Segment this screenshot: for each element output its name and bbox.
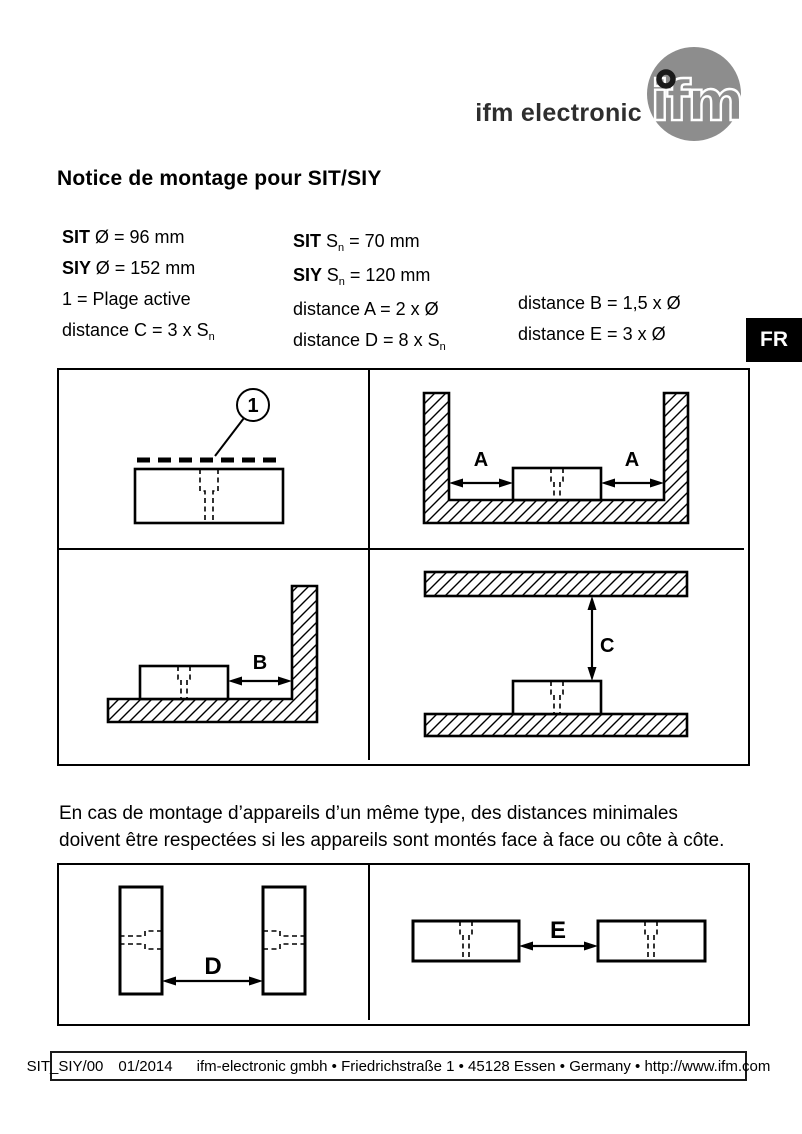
- spec-column-1: SIT Ø = 96 mmSIY Ø = 152 mm1 = Plage act…: [62, 222, 215, 349]
- callout-label: 1: [247, 395, 258, 417]
- distance-b-arrow: [228, 677, 292, 686]
- sensor-outline: [513, 681, 601, 714]
- diagram-distance-c: C: [370, 550, 744, 760]
- spec-column-3: distance B = 1,5 x Ødistance E = 3 x Ø: [518, 288, 681, 350]
- diagram-active-zone: 1: [59, 370, 370, 550]
- u-channel-hatched: [424, 393, 688, 523]
- page-title: Notice de montage pour SIT/SIY: [57, 167, 382, 191]
- diagram-distance-a: A A: [370, 370, 744, 550]
- footer-doc-code: SIT_SIY/00: [27, 1058, 104, 1075]
- spec-line: SIY Ø = 152 mm: [62, 253, 215, 284]
- spec-line: distance E = 3 x Ø: [518, 319, 681, 350]
- spec-line: SIY Sn = 120 mm: [293, 260, 446, 294]
- sensor-outline: [120, 887, 162, 994]
- distance-a-label: A: [474, 449, 488, 471]
- spec-column-2: SIT Sn = 70 mmSIY Sn = 120 mmdistance A …: [293, 226, 446, 359]
- sensor-outline: [140, 666, 228, 699]
- spec-line: SIT Ø = 96 mm: [62, 222, 215, 253]
- footer-address: ifm-electronic gmbh • Friedrichstraße 1 …: [197, 1058, 771, 1075]
- language-tab: FR: [746, 318, 802, 362]
- distance-c-label: C: [600, 635, 614, 657]
- note-paragraph: En cas de montage d’appareils d’un même …: [59, 800, 731, 854]
- spec-line: 1 = Plage active: [62, 284, 215, 315]
- spec-line: distance D = 8 x Sn: [293, 325, 446, 359]
- footer-date: 01/2014: [118, 1058, 172, 1075]
- diagram-table-2: D E: [57, 863, 750, 1026]
- ifm-logo: ifm: [646, 46, 742, 142]
- diagram-distance-e: E: [370, 865, 744, 1020]
- sensor-outline: [135, 469, 283, 523]
- callout-leader-line: [215, 418, 244, 456]
- spec-line: distance B = 1,5 x Ø: [518, 288, 681, 319]
- footer-bar: SIT_SIY/00 01/2014 ifm-electronic gmbh •…: [50, 1051, 747, 1081]
- sensor-outline: [598, 921, 705, 961]
- diagram-table-1: 1: [57, 368, 750, 766]
- top-plate-hatched: [425, 572, 687, 596]
- sensor-outline: [263, 887, 305, 994]
- distance-a-label: A: [625, 449, 639, 471]
- distance-a-arrow-left: [449, 479, 513, 488]
- distance-c-arrow: [588, 596, 597, 681]
- distance-a-arrow-right: [601, 479, 664, 488]
- brand-text: ifm electronic: [370, 99, 642, 128]
- spec-line: distance C = 3 x Sn: [62, 315, 215, 349]
- diagram-distance-d: D: [59, 865, 370, 1020]
- sensor-outline: [513, 468, 601, 500]
- document-page: ifm electronic ifm Notice de montage pou…: [0, 0, 802, 1134]
- l-wall-hatched: [108, 586, 317, 722]
- bottom-plate-hatched: [425, 714, 687, 736]
- spec-line: distance A = 2 x Ø: [293, 294, 446, 325]
- distance-b-label: B: [253, 652, 267, 674]
- distance-e-label: E: [550, 917, 566, 944]
- distance-d-label: D: [204, 953, 221, 980]
- diagram-distance-b: B: [59, 550, 370, 760]
- sensor-outline: [413, 921, 519, 961]
- spec-line: SIT Sn = 70 mm: [293, 226, 446, 260]
- logo-letters: ifm: [650, 69, 741, 133]
